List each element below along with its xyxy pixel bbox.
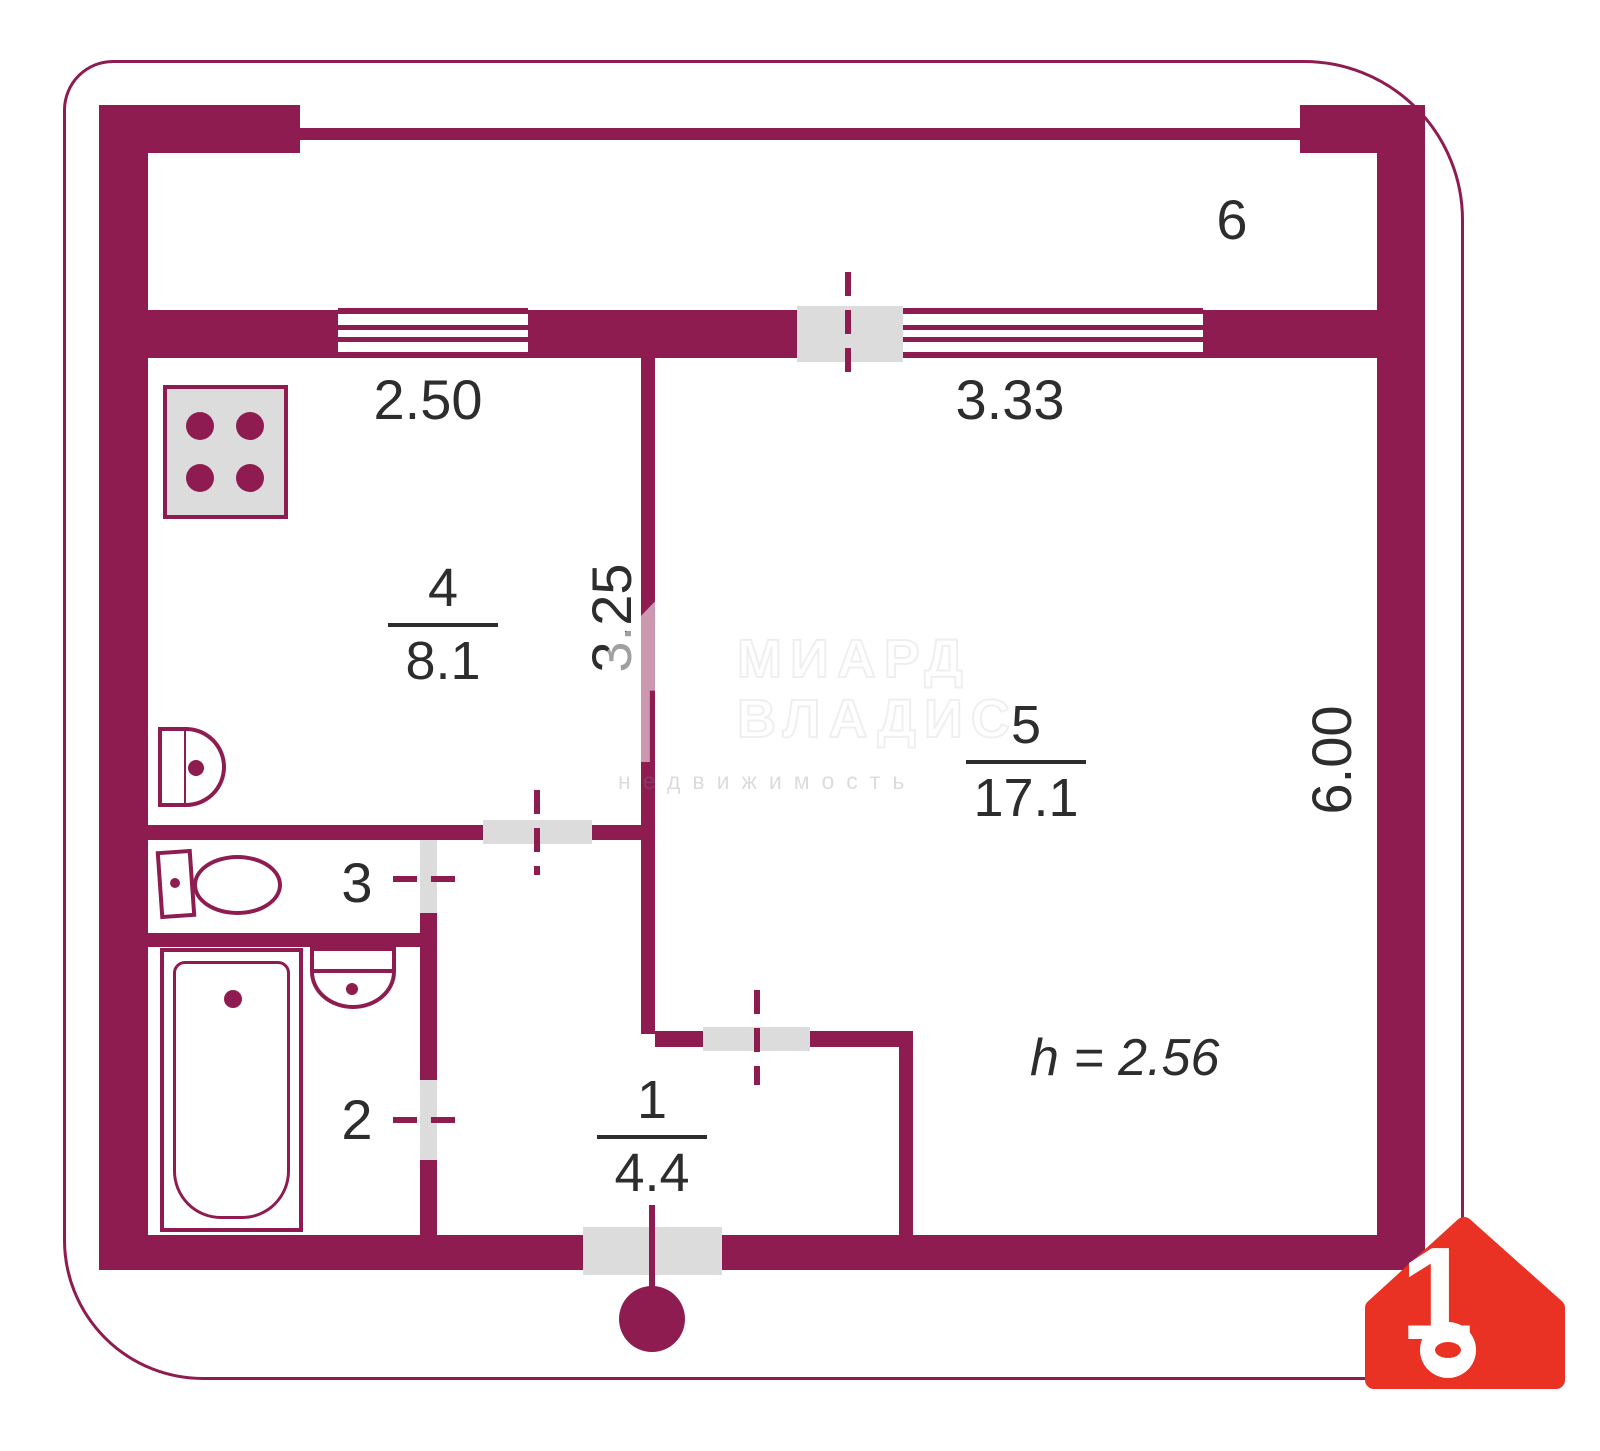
bathroom-door-swing xyxy=(393,1117,459,1123)
fraction-bar xyxy=(597,1135,707,1139)
stove-burner xyxy=(236,412,264,440)
wall-top-left-pillar xyxy=(148,105,300,153)
wall-bottom xyxy=(99,1235,1425,1270)
kitchen-window-icon xyxy=(338,308,528,358)
wall-bath-right-lower xyxy=(420,1160,437,1235)
wall-kitchen-bottom-right xyxy=(592,825,655,840)
watermark-line2: ВЛАДИС xyxy=(737,692,1018,746)
wall-notch-vertical xyxy=(899,1047,913,1235)
wall-notch-left xyxy=(655,1031,703,1047)
entrance-knob-icon xyxy=(619,1286,685,1352)
wall-bath-right-upper xyxy=(420,913,437,1080)
window-mullion xyxy=(338,325,528,330)
logo-key-hole xyxy=(1435,1342,1461,1358)
dim-kitchen-width: 2.50 xyxy=(328,372,528,428)
wall-kitchen-bottom-left xyxy=(148,825,483,840)
living-window-icon xyxy=(903,308,1203,358)
room-hall-area: 4.4 xyxy=(614,1145,689,1202)
wall-left xyxy=(99,105,148,1270)
stove-burner xyxy=(186,412,214,440)
logo-key-ring-icon xyxy=(1420,1322,1476,1378)
wall-notch-right xyxy=(810,1031,913,1047)
washbasin-drain xyxy=(346,983,358,995)
wall-balcony-top xyxy=(300,128,1300,140)
room-bathroom-label: 2 xyxy=(327,1092,387,1148)
washbasin-edge xyxy=(314,969,392,973)
fraction-bar xyxy=(966,760,1086,764)
wall-right xyxy=(1377,153,1425,1270)
room-kitchen-area: 8.1 xyxy=(405,633,480,690)
room-hall-label: 1 4.4 xyxy=(597,1072,707,1201)
dim-living-depth: 6.00 xyxy=(1304,680,1360,840)
room-living-area: 17.1 xyxy=(973,770,1078,827)
room-kitchen-number: 4 xyxy=(428,560,458,617)
dim-kitchen-depth: 3.25 xyxy=(584,543,640,693)
ceiling-height-label: h = 2.56 xyxy=(1030,1032,1300,1084)
kitchen-sink-icon xyxy=(158,727,188,807)
window-mullion xyxy=(338,337,528,342)
bathtub-drain xyxy=(224,990,242,1008)
room-wc-label: 3 xyxy=(327,855,387,911)
wc-door-swing xyxy=(393,876,459,882)
agency-logo: 1 xyxy=(1358,1210,1573,1402)
kitchen-sink-drain xyxy=(188,760,204,776)
dim-living-width: 3.33 xyxy=(910,372,1110,428)
wall-wc-bottom xyxy=(148,933,433,947)
watermark-line1: МИАРД xyxy=(737,632,971,686)
wall-kitchen-living-divider xyxy=(641,358,655,1034)
window-mullion xyxy=(903,337,1203,342)
stove-burner xyxy=(186,464,214,492)
stove-burner xyxy=(236,464,264,492)
wall-top-right-pillar xyxy=(1300,105,1425,153)
window-mullion xyxy=(903,325,1203,330)
floor-plan: 2.50 3.33 3.25 6.00 h = 2.56 6 4 8.1 5 1… xyxy=(0,0,1600,1451)
room-balcony-label: 6 xyxy=(1197,192,1267,248)
toilet-bowl-icon xyxy=(193,855,282,915)
kitchen-door-swing xyxy=(534,790,540,875)
watermark-line3: недвижимость xyxy=(618,768,916,795)
entrance-axis-line xyxy=(649,1205,655,1289)
balcony-door-swing xyxy=(845,272,851,380)
room-hall-number: 1 xyxy=(637,1072,667,1129)
room-kitchen-label: 4 8.1 xyxy=(388,560,498,689)
living-door-swing xyxy=(754,990,760,1085)
stove-icon xyxy=(163,385,288,519)
toilet-button xyxy=(170,878,180,888)
fraction-bar xyxy=(388,623,498,627)
